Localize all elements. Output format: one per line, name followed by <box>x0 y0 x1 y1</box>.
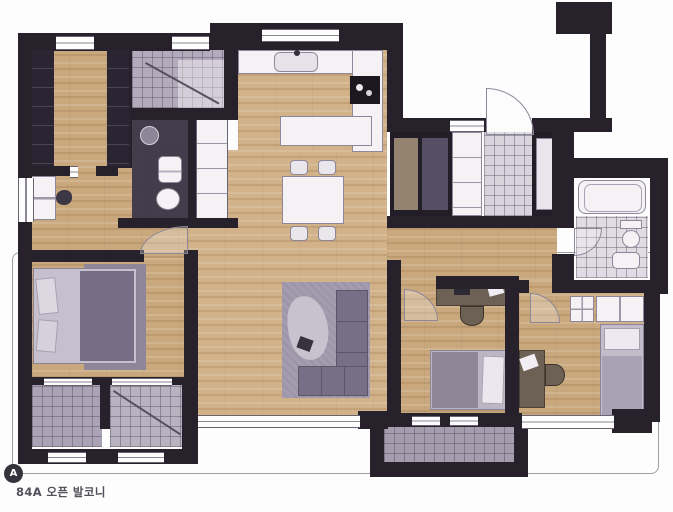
entry-door-arc <box>486 88 534 135</box>
balcony-marker-a: A <box>4 464 23 483</box>
bathroom-door-arc <box>574 228 602 256</box>
bedroom2-door-arc <box>404 289 438 321</box>
master-door-arc <box>140 226 188 254</box>
plan-label: 84A 오픈 발코니 <box>16 484 106 500</box>
floor-plan: A 84A 오픈 발코니 <box>0 0 673 512</box>
bedroom3-door-arc <box>530 293 560 323</box>
doors-layer <box>0 0 673 512</box>
